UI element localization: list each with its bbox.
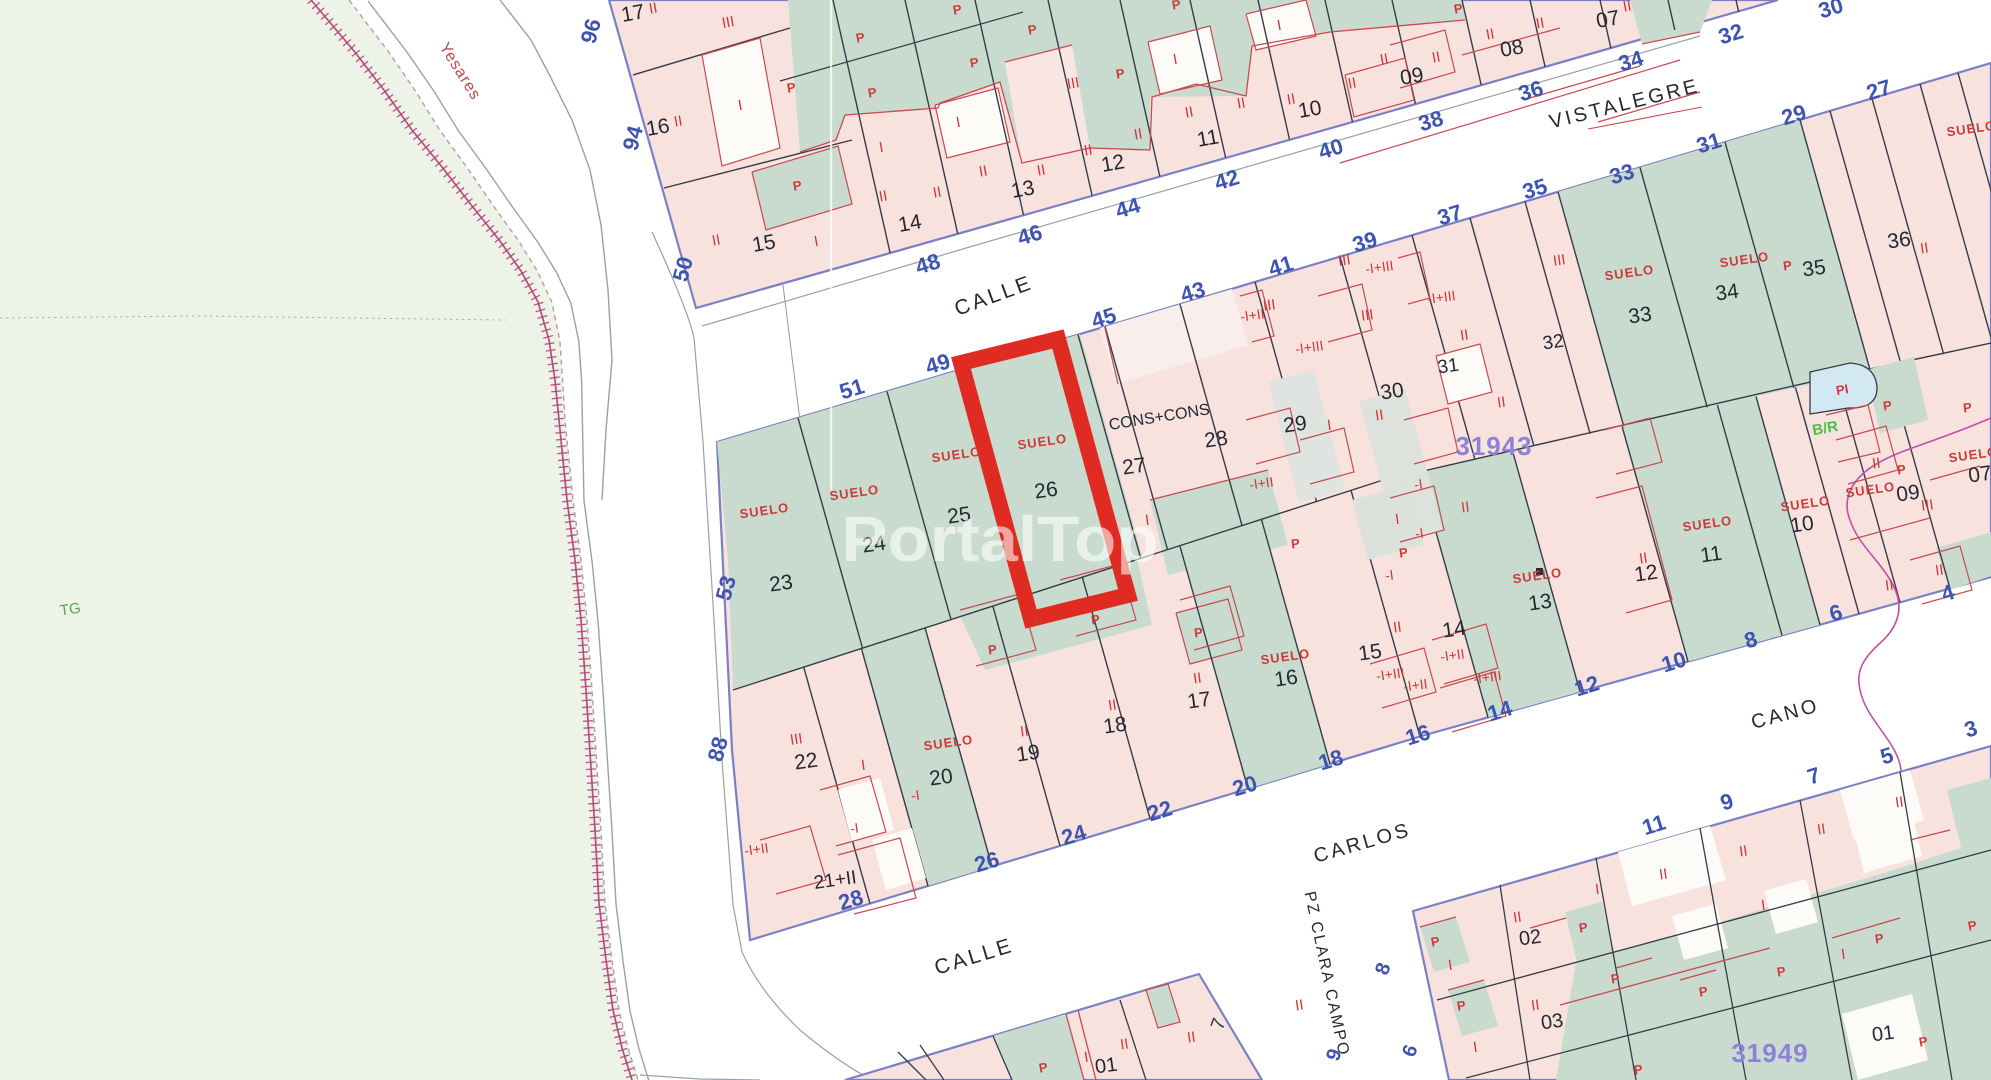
svg-text:-I+II: -I+II (1239, 305, 1266, 324)
svg-text:23: 23 (768, 571, 794, 597)
svg-text:03: 03 (1540, 1010, 1565, 1035)
svg-text:07: 07 (1594, 6, 1621, 33)
svg-text:31943: 31943 (1455, 431, 1532, 461)
svg-text:31: 31 (1436, 355, 1460, 379)
svg-text:-I+II: -I+II (1248, 473, 1275, 492)
svg-text:20: 20 (928, 765, 954, 791)
svg-text:TG: TG (59, 600, 82, 620)
svg-text:13: 13 (1527, 590, 1553, 616)
svg-text:30: 30 (1379, 379, 1405, 405)
svg-text:10: 10 (1296, 96, 1323, 123)
svg-text:27: 27 (1121, 454, 1147, 480)
svg-text:01: 01 (1094, 1054, 1119, 1079)
svg-text:-I+II: -I+II (743, 839, 770, 858)
svg-text:26: 26 (1033, 478, 1059, 504)
svg-text:19: 19 (1015, 741, 1041, 767)
svg-text:01: 01 (1871, 1022, 1896, 1047)
svg-text:PortalTop: PortalTop (842, 503, 1159, 575)
svg-text:18: 18 (1102, 713, 1128, 739)
svg-text:12: 12 (1099, 150, 1126, 177)
svg-text:III: III (1360, 306, 1375, 325)
svg-text:09: 09 (1398, 63, 1425, 90)
svg-text:22: 22 (793, 749, 819, 775)
svg-text:34: 34 (1714, 280, 1741, 306)
svg-text:17: 17 (1186, 688, 1212, 714)
svg-text:02: 02 (1518, 926, 1543, 951)
svg-text:15: 15 (1357, 640, 1383, 666)
svg-text:13: 13 (1009, 176, 1036, 203)
svg-text:-I+II: -I+II (1439, 645, 1466, 664)
svg-text:PI: PI (1835, 381, 1850, 398)
svg-text:07: 07 (1967, 462, 1991, 488)
svg-text:11: 11 (1699, 542, 1724, 568)
svg-text:29: 29 (1282, 412, 1308, 438)
svg-text:11: 11 (1195, 125, 1220, 151)
svg-text:32: 32 (1541, 331, 1565, 355)
svg-text:-I+II: -I+II (1402, 675, 1429, 694)
svg-text:33: 33 (1627, 303, 1653, 329)
svg-text:14: 14 (1441, 617, 1468, 643)
svg-text:16: 16 (644, 114, 671, 141)
svg-text:08: 08 (1498, 35, 1525, 62)
svg-text:31949: 31949 (1731, 1038, 1808, 1068)
svg-text:III: III (1337, 251, 1352, 270)
svg-text:35: 35 (1801, 256, 1827, 282)
svg-text:17: 17 (619, 0, 646, 27)
svg-text:14: 14 (896, 210, 923, 237)
svg-text:09: 09 (1895, 481, 1921, 507)
svg-text:28: 28 (1203, 427, 1229, 453)
svg-text:10: 10 (1789, 512, 1815, 538)
svg-text:15: 15 (750, 230, 777, 257)
svg-text:III: III (789, 730, 804, 749)
svg-text:16: 16 (1273, 666, 1299, 692)
svg-text:III: III (1552, 251, 1567, 270)
svg-text:III: III (1920, 496, 1935, 515)
svg-text:36: 36 (1886, 228, 1912, 254)
